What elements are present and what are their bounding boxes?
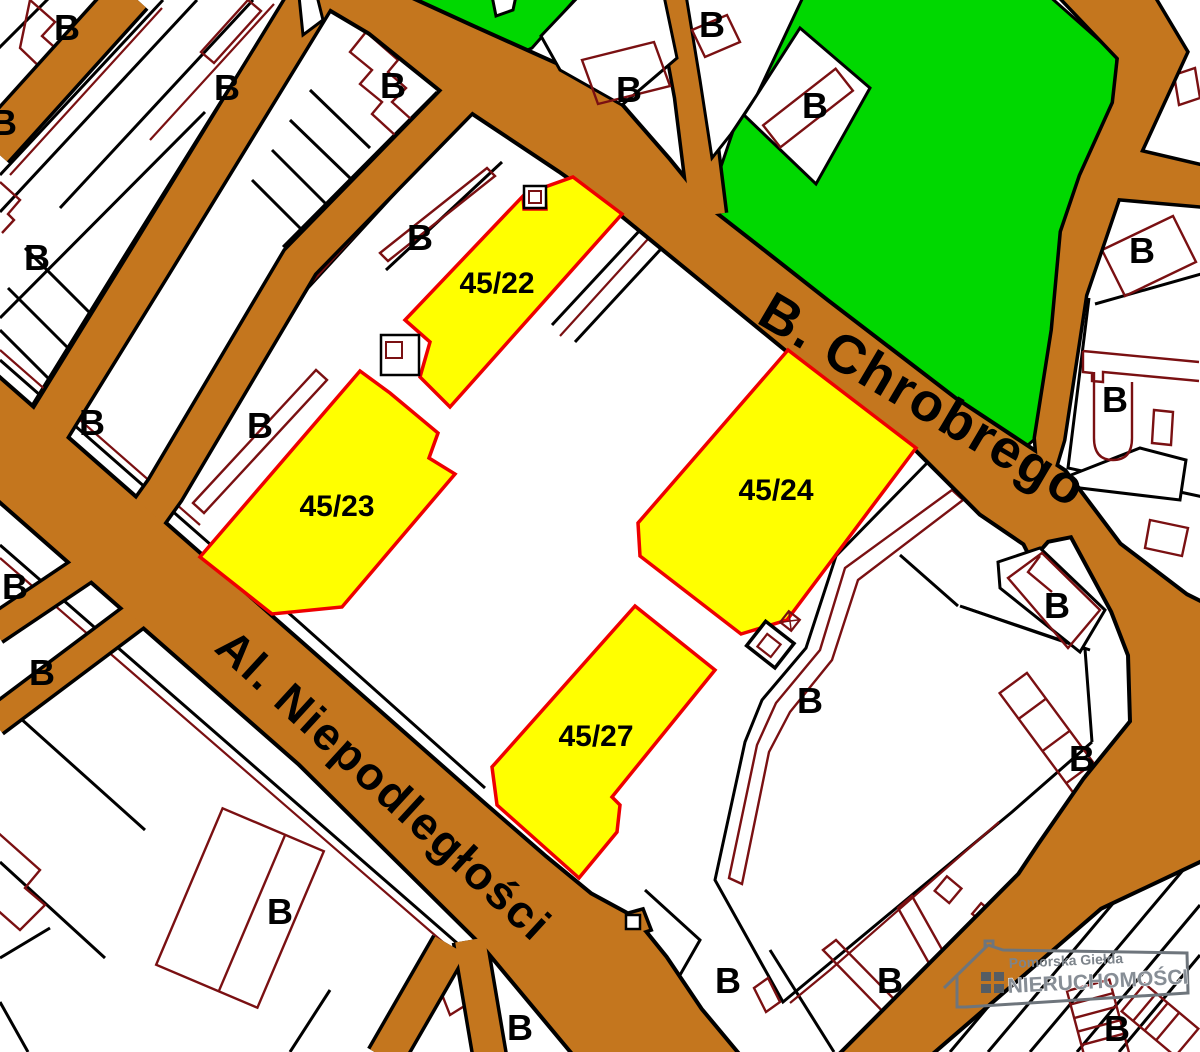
- svg-text:B: B: [1069, 738, 1095, 779]
- svg-text:B: B: [797, 680, 823, 721]
- svg-text:45/23: 45/23: [299, 490, 374, 523]
- svg-text:B: B: [380, 65, 406, 106]
- svg-text:B: B: [0, 102, 17, 143]
- svg-text:45/24: 45/24: [738, 474, 813, 507]
- svg-text:B: B: [699, 4, 725, 45]
- svg-text:B: B: [1129, 230, 1155, 271]
- svg-text:B: B: [214, 67, 240, 108]
- svg-text:45/22: 45/22: [459, 267, 534, 300]
- svg-text:B: B: [29, 652, 55, 693]
- svg-text:B: B: [1044, 585, 1070, 626]
- svg-text:B: B: [715, 960, 741, 1001]
- svg-text:B: B: [24, 237, 50, 278]
- svg-text:45/27: 45/27: [558, 720, 633, 753]
- svg-text:B: B: [616, 69, 642, 110]
- svg-text:B: B: [79, 402, 105, 443]
- svg-text:B: B: [2, 566, 28, 607]
- svg-text:B: B: [877, 960, 903, 1001]
- svg-text:B: B: [802, 85, 828, 126]
- svg-text:B: B: [1102, 379, 1128, 420]
- svg-text:B: B: [247, 405, 273, 446]
- svg-text:B: B: [407, 217, 433, 258]
- svg-text:B: B: [54, 7, 80, 48]
- svg-text:B: B: [507, 1007, 533, 1048]
- svg-text:B: B: [267, 891, 293, 932]
- svg-text:B: B: [1104, 1008, 1130, 1049]
